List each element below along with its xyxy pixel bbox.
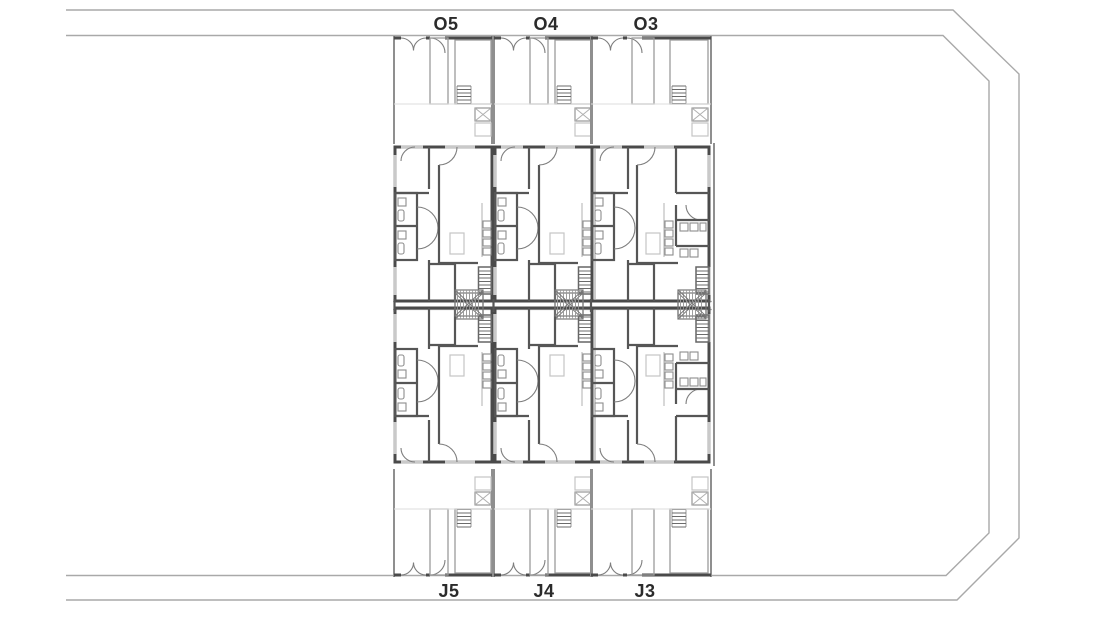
site-boundary — [66, 10, 1019, 600]
plot-label-J3: J3 — [634, 581, 655, 601]
unit-J3 — [592, 290, 709, 462]
unit-J4 — [495, 290, 592, 462]
garden-J4 — [494, 469, 592, 577]
unit-O3 — [592, 147, 709, 319]
plot-label-J4: J4 — [533, 581, 554, 601]
floor-plan-canvas: O5 O4 O3 J5 J4 J3 — [0, 0, 1110, 623]
site-boundary-inner-line — [66, 36, 989, 576]
garden-O5 — [394, 36, 492, 144]
plot-label-O4: O4 — [533, 14, 558, 34]
unit-J5 — [395, 290, 492, 462]
site-boundary-outer-line — [66, 10, 1019, 600]
garden-J5 — [394, 469, 492, 577]
unit-O4 — [495, 147, 592, 319]
unit-O5 — [395, 147, 492, 319]
plot-label-O3: O3 — [633, 14, 658, 34]
page: O5 O4 O3 J5 J4 J3 — [0, 0, 1110, 623]
garden-O4 — [494, 36, 592, 144]
garden-O3 — [591, 36, 711, 144]
plot-label-O5: O5 — [433, 14, 458, 34]
garden-J3 — [591, 469, 711, 577]
plot-label-J5: J5 — [438, 581, 459, 601]
